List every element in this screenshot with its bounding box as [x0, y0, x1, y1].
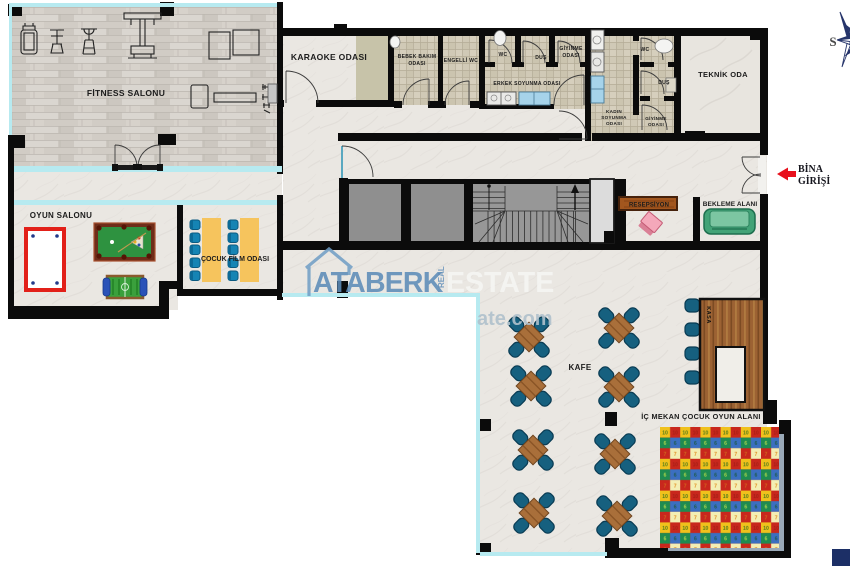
svg-text:ODASI: ODASI: [408, 61, 426, 67]
svg-text:İÇ MEKAN ÇOCUK OYUN ALANI: İÇ MEKAN ÇOCUK OYUN ALANI: [641, 412, 761, 421]
svg-text:SOYUNMA: SOYUNMA: [601, 115, 627, 120]
svg-text:GİYİNME: GİYİNME: [559, 45, 583, 52]
svg-text:DUŞ: DUŞ: [535, 55, 547, 61]
svg-text:WC: WC: [641, 47, 650, 53]
svg-text:ODASI: ODASI: [648, 122, 664, 127]
svg-text:ODASI: ODASI: [562, 53, 580, 59]
svg-text:DUŞ: DUŞ: [658, 80, 670, 86]
svg-text:FİTNESS SALONU: FİTNESS SALONU: [87, 88, 165, 98]
svg-text:GİYİNME: GİYİNME: [645, 115, 667, 121]
svg-text:ERKEK SOYUNMA ODASI: ERKEK SOYUNMA ODASI: [493, 81, 560, 87]
svg-text:KAFE: KAFE: [569, 363, 592, 372]
svg-text:KADIN: KADIN: [606, 109, 622, 114]
svg-text:WC: WC: [499, 52, 508, 58]
svg-text:KARAOKE ODASI: KARAOKE ODASI: [291, 52, 367, 62]
svg-text:ESTATE: ESTATE: [446, 267, 554, 299]
svg-text:ÇOCUK FİLM ODASI: ÇOCUK FİLM ODASI: [201, 255, 269, 263]
svg-text:ate.com: ate.com: [477, 308, 553, 330]
svg-text:BEKLEME ALANI: BEKLEME ALANI: [703, 201, 758, 208]
svg-text:BEBEK BAKIM: BEBEK BAKIM: [398, 54, 437, 60]
svg-text:OYUN SALONU: OYUN SALONU: [30, 211, 92, 220]
svg-text:GİRİŞİ: GİRİŞİ: [798, 175, 830, 187]
svg-text:BİNA: BİNA: [798, 163, 824, 175]
svg-text:RESEPSİYON: RESEPSİYON: [629, 202, 669, 209]
svg-text:ATABERK: ATABERK: [313, 267, 444, 299]
svg-text:ODASI: ODASI: [606, 121, 622, 126]
svg-text:TEKNİK ODA: TEKNİK ODA: [698, 70, 748, 79]
svg-text:ENGELLİ WC: ENGELLİ WC: [444, 57, 478, 64]
svg-text:KASA: KASA: [705, 306, 711, 324]
svg-text:REAL: REAL: [437, 266, 446, 288]
svg-text:S: S: [829, 34, 836, 49]
